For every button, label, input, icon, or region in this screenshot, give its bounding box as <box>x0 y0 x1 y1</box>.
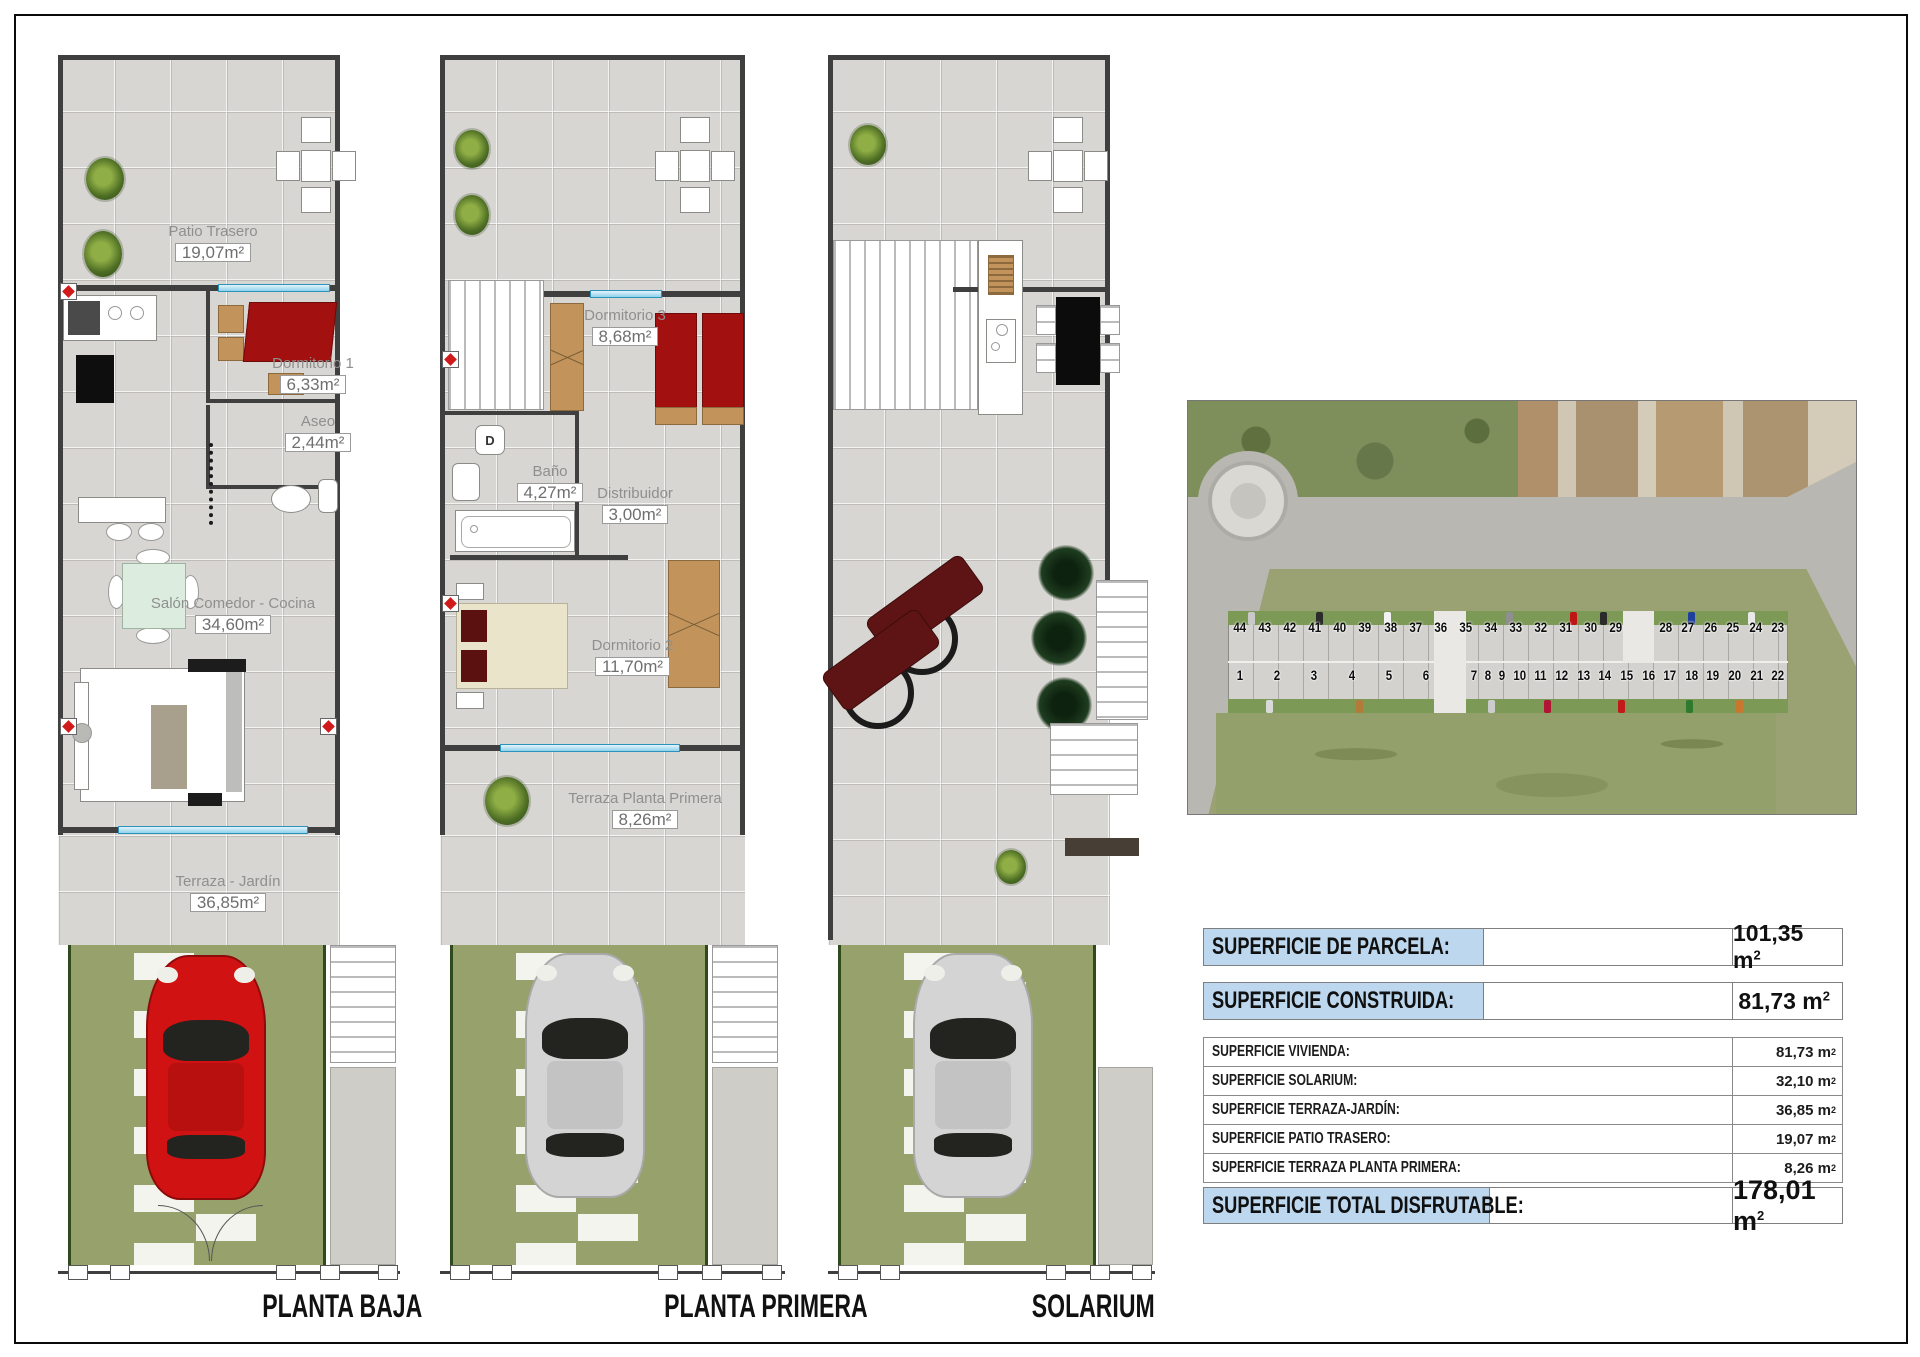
palm-plant <box>1038 545 1094 601</box>
stairs <box>330 945 396 1063</box>
nightstand <box>456 583 484 600</box>
stairs <box>712 945 778 1063</box>
plot-numbers-top-left: 44434241403938373635343332313029 <box>1232 619 1624 635</box>
nightstand <box>702 407 744 425</box>
wall-marker <box>442 595 459 612</box>
patio-table <box>1028 117 1108 213</box>
stairs <box>1050 723 1138 795</box>
fridge <box>76 355 114 403</box>
bathtub <box>455 510 575 552</box>
patio-table <box>276 117 356 213</box>
outdoor-chair <box>1100 343 1120 373</box>
plot-numbers-top-right: 282726252423 <box>1658 619 1786 635</box>
car <box>146 955 266 1200</box>
kitchen-island <box>78 497 166 523</box>
wall-marker <box>60 718 77 735</box>
sink <box>452 463 480 501</box>
caption-planta-baja: PLANTA BAJA <box>200 1288 400 1325</box>
palm-plant <box>1031 610 1087 666</box>
kitchen-counter <box>63 295 157 341</box>
car <box>913 953 1033 1198</box>
side-path <box>1098 1067 1153 1265</box>
sink <box>318 479 338 513</box>
room-label-patio-trasero: Patio Trasero 19,07m² <box>113 223 313 262</box>
car <box>525 953 645 1198</box>
sink <box>986 319 1016 363</box>
stool <box>138 523 164 541</box>
room-label-terraza-primera: Terraza Planta Primera 8,26m² <box>545 790 745 829</box>
caption-solarium: SOLARIUM <box>955 1288 1155 1325</box>
floor-plan-planta-baja: Patio Trasero 19,07m² Dormitorio 1 6,33m… <box>58 55 400 1283</box>
table-row-total: SUPERFICIE TOTAL DISFRUTABLE: 178,01 m2 <box>1203 1187 1843 1224</box>
side-path <box>330 1067 396 1265</box>
table-row: SUPERFICIE SOLARIUM: 32,10 m2 <box>1203 1066 1843 1096</box>
buildings <box>1518 401 1857 499</box>
bench <box>1065 838 1139 856</box>
plant <box>996 850 1026 884</box>
roundabout <box>1198 451 1298 551</box>
bed <box>243 302 337 362</box>
vent-grill <box>988 255 1014 295</box>
outdoor-chair <box>1036 343 1056 373</box>
plant <box>86 158 124 200</box>
washer: D <box>475 425 505 455</box>
field <box>1216 713 1776 815</box>
terrace-tiles <box>440 835 745 945</box>
stool <box>106 523 132 541</box>
nightstand <box>655 407 697 425</box>
nightstand <box>218 305 244 333</box>
floor-plan-sheet: Patio Trasero 19,07m² Dormitorio 1 6,33m… <box>0 0 1920 1357</box>
dining-table <box>1056 297 1100 385</box>
room-label-dormitorio-3: Dormitorio 3 8,68m² <box>565 307 685 346</box>
nightstand <box>456 692 484 709</box>
outdoor-kitchen-counter <box>978 240 1023 415</box>
room-label-distribuidor: Distribuidor 3,00m² <box>580 485 690 524</box>
floor-plan-solarium <box>828 55 1155 1283</box>
plot-numbers-bottom-left: 123456 <box>1236 667 1430 683</box>
plot-numbers-bottom-right: 78910111213141516171819202122 <box>1470 667 1786 683</box>
table-detail-rows: SUPERFICIE VIVIENDA: 81,73 m2 SUPERFICIE… <box>1203 1038 1843 1183</box>
coffee-table <box>151 705 187 789</box>
wall-marker <box>320 718 337 735</box>
room-label-terraza-jardin: Terraza - Jardín 36,85m² <box>138 873 318 912</box>
table-row: SUPERFICIE VIVIENDA: 81,73 m2 <box>1203 1037 1843 1067</box>
caption-planta-primera: PLANTA PRIMERA <box>585 1288 785 1325</box>
plant <box>455 195 489 235</box>
nightstand <box>218 337 244 361</box>
table-row-construida: SUPERFICIE CONSTRUIDA: 81,73 m2 <box>1203 982 1843 1020</box>
window <box>218 284 330 292</box>
stairs <box>833 240 978 410</box>
side-path <box>712 1067 778 1265</box>
wall-top <box>58 55 340 60</box>
plant <box>485 777 529 825</box>
wall-marker <box>442 351 459 368</box>
bed <box>456 603 568 689</box>
toilet <box>271 485 311 513</box>
room-label-dormitorio-2: Dormitorio 2 11,70m² <box>575 637 690 676</box>
room-label-salon: Salón Comedor - Cocina 34,60m² <box>103 595 363 634</box>
room-label-aseo: Aseo 2,44m² <box>273 413 363 452</box>
sliding-door <box>118 826 308 834</box>
table-row-parcela: SUPERFICIE DE PARCELA: 101,35 m2 <box>1203 928 1843 966</box>
outdoor-chair <box>1036 305 1056 335</box>
plant <box>455 130 489 168</box>
patio-table <box>655 117 735 213</box>
stairs <box>448 280 544 410</box>
aerial-site-photo: 44434241403938373635343332313029 2827262… <box>1187 400 1857 815</box>
table-row: SUPERFICIE TERRAZA-JARDÍN: 36,85 m2 <box>1203 1095 1843 1125</box>
sliding-door <box>500 744 680 752</box>
room-label-dormitorio-1: Dormitorio 1 6,33m² <box>253 355 373 394</box>
outdoor-chair <box>1100 305 1120 335</box>
table-row: SUPERFICIE PATIO TRASERO: 19,07 m2 <box>1203 1124 1843 1154</box>
window <box>590 290 662 298</box>
plant <box>850 125 886 165</box>
stairs <box>1096 580 1148 720</box>
wall-marker <box>60 283 77 300</box>
dashed-partition <box>209 443 213 525</box>
floor-plan-planta-primera: Dormitorio 3 8,68m² D Baño 4,27m² Distri… <box>440 55 785 1283</box>
